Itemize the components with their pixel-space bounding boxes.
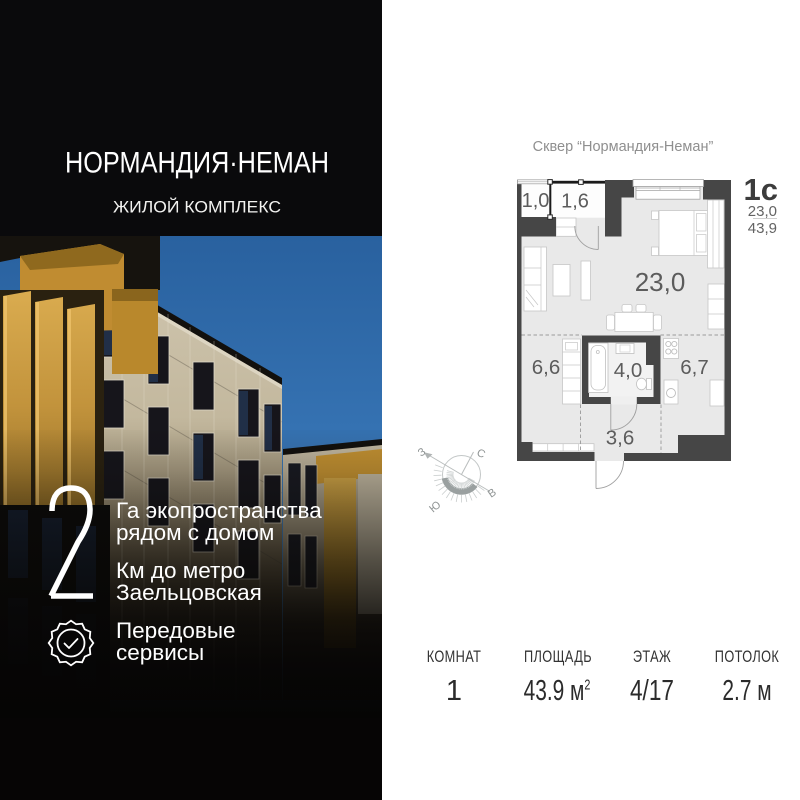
svg-text:НОРМАНДИЯ·НЕМАН: НОРМАНДИЯ·НЕМАН — [65, 147, 329, 180]
svg-text:6,7: 6,7 — [680, 356, 709, 379]
svg-text:6,6: 6,6 — [532, 356, 561, 379]
svg-text:23,0: 23,0 — [635, 267, 686, 297]
svg-text:1,6: 1,6 — [561, 191, 589, 213]
svg-text:4,0: 4,0 — [614, 359, 643, 382]
svg-text:ЖИЛОЙ КОМПЛЕКС: ЖИЛОЙ КОМПЛЕКС — [113, 198, 281, 217]
svg-text:З: З — [416, 446, 429, 460]
svg-text:В: В — [486, 486, 499, 500]
svg-text:3,6: 3,6 — [606, 427, 635, 450]
svg-text:Ю: Ю — [427, 499, 443, 515]
svg-text:С: С — [475, 447, 487, 461]
svg-text:1,0: 1,0 — [522, 190, 550, 212]
